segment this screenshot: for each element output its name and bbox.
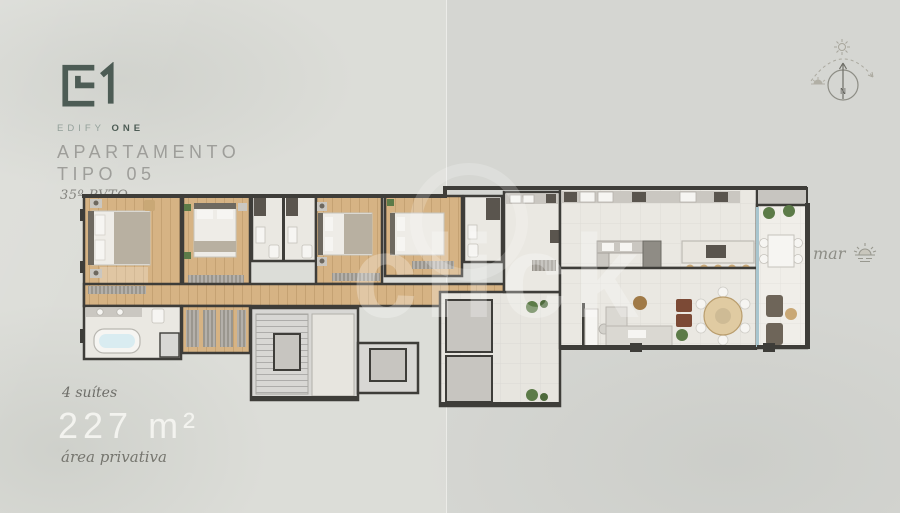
master-bathroom xyxy=(84,306,181,359)
compass-icon: N xyxy=(803,33,881,105)
private-elevator-b xyxy=(446,356,492,402)
suite-3-bed xyxy=(318,213,372,255)
sun-top-icon xyxy=(834,39,850,55)
compass-north-label: N xyxy=(840,87,846,96)
suite-3-wardrobe xyxy=(332,273,380,281)
plant xyxy=(676,329,688,341)
brand-block: EDIFY ONE xyxy=(57,62,144,134)
sea-label: mar xyxy=(813,244,845,263)
suite-bathrooms xyxy=(252,196,316,261)
plant xyxy=(526,389,538,401)
living-dining xyxy=(560,268,757,352)
armchair xyxy=(676,299,692,312)
e1-logo-icon xyxy=(57,62,119,110)
suite-2-bed xyxy=(194,203,236,257)
balcony xyxy=(756,188,810,352)
private-elevator-a xyxy=(446,300,492,352)
suite-1-bed xyxy=(88,211,150,265)
suite-4-wardrobe xyxy=(412,261,454,269)
sink xyxy=(680,192,696,202)
washer xyxy=(510,195,521,203)
bathtub xyxy=(94,329,140,353)
plant xyxy=(783,205,795,217)
armchair xyxy=(676,314,692,327)
plant xyxy=(540,393,548,401)
suite-4-bathroom xyxy=(464,196,502,262)
elevator-room-2 xyxy=(358,343,418,393)
plant xyxy=(763,207,775,219)
elevator-1 xyxy=(274,334,300,370)
dryer xyxy=(523,195,534,203)
kitchen xyxy=(560,188,757,279)
service-area xyxy=(504,192,560,292)
compass-block: N xyxy=(803,33,881,110)
suite-4 xyxy=(385,196,462,276)
entry-foyer xyxy=(440,292,560,406)
sea-sun-icon xyxy=(852,240,878,266)
master-closet xyxy=(182,306,250,353)
suite-2-wardrobe xyxy=(188,275,244,283)
floor-plan xyxy=(80,183,810,415)
suite-4-bed xyxy=(390,213,444,255)
page: EDIFY ONE APARTAMENTO TIPO 05 35º PVTO 4… xyxy=(0,0,900,513)
home-office-desk xyxy=(585,309,598,347)
sea-block: mar xyxy=(813,240,878,266)
cooktop-wall xyxy=(632,192,646,202)
brand-name-light: EDIFY xyxy=(57,123,105,134)
plant xyxy=(526,301,538,313)
glass-railing xyxy=(756,207,759,347)
private-area-label: área privativa xyxy=(61,448,200,466)
suite-2 xyxy=(183,196,250,284)
sunset-left-icon xyxy=(811,77,825,84)
dry-plant xyxy=(633,296,647,310)
page-title-line1: APARTAMENTO xyxy=(57,141,240,163)
brand-name: EDIFY ONE xyxy=(57,123,144,134)
stair-core xyxy=(251,308,358,400)
plant xyxy=(540,300,548,308)
page-title-line2: TIPO 05 xyxy=(57,163,240,185)
fridge xyxy=(564,192,577,202)
suite-3 xyxy=(316,196,382,284)
brand-name-bold: ONE xyxy=(111,123,144,134)
